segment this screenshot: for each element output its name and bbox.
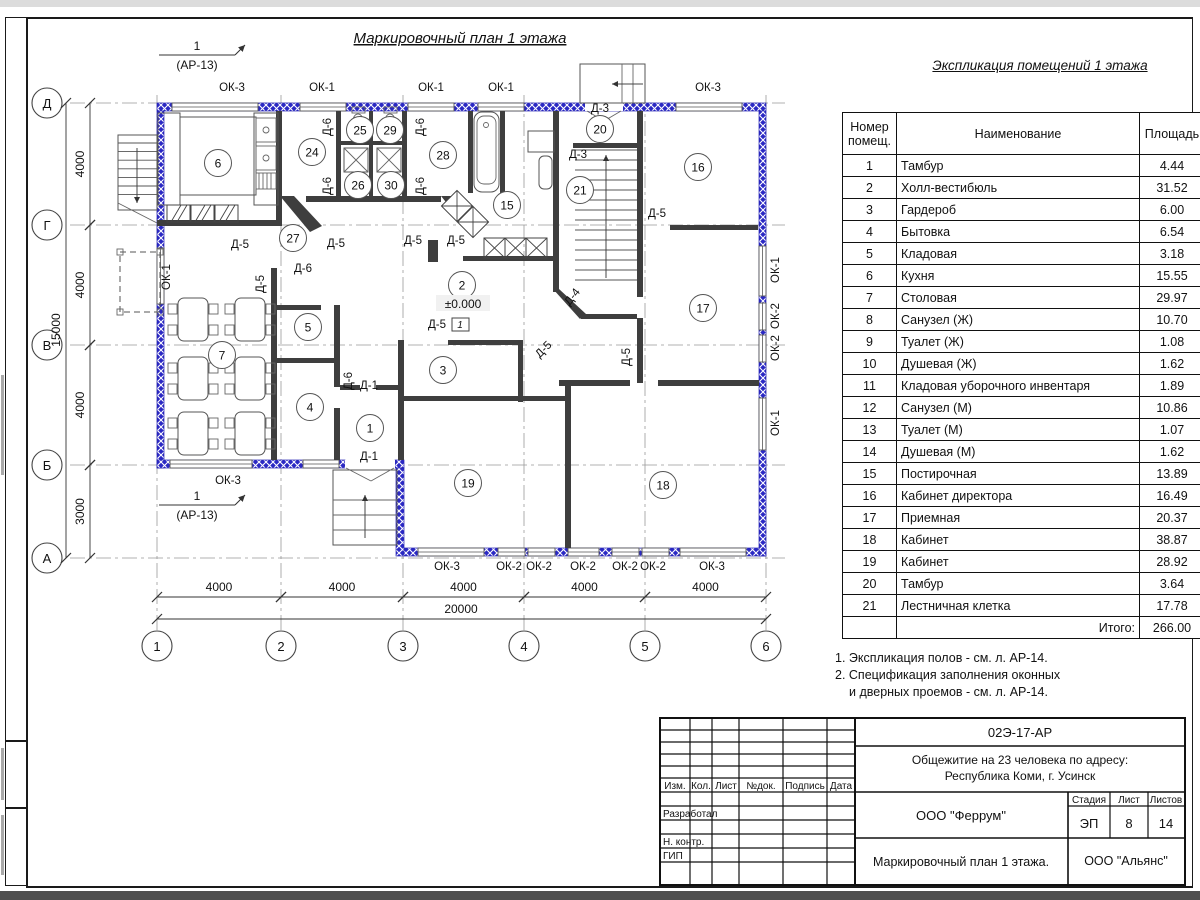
window-label: ОК-2 [612,561,638,573]
section-marker-ref: (АР-13) [176,58,217,72]
axis-label: 4 [520,639,527,654]
room-marker-number: 16 [691,161,705,175]
door-label: Д-5 [533,339,554,360]
entrance-porch [333,468,397,545]
level-mark: ±0.000 [445,297,482,311]
door-label: Д-4 [562,286,583,308]
title-block-label: Кол. [691,781,711,792]
margin-divider [5,807,26,809]
title-block-label: Изм. [664,781,685,792]
room-marker-number: 27 [286,232,300,246]
door-label: Д-3 [591,103,609,115]
door-label: Д-5 [404,235,422,247]
title-block-label: 8 [1125,816,1132,831]
window-label: ОК-3 [215,475,241,487]
notes: 1. Экспликация полов - см. л. АР-14.2. С… [835,650,1060,701]
window-label: ОК-2 [770,303,782,329]
room-marker-number: 6 [215,157,222,171]
stair-external [118,135,157,223]
chair [168,304,177,314]
canopy-dashed [117,249,163,315]
table-row: 20Тамбур3.64 [843,573,1200,595]
axis-label: Б [43,458,52,473]
chair [168,384,177,394]
table-row: 17Приемная20.37 [843,507,1200,529]
table-row: 16Кабинет директора16.49 [843,485,1200,507]
table-row: 1Тамбур4.44 [843,155,1200,177]
room-marker-number: 18 [656,479,670,493]
room-marker-number: 28 [436,149,450,163]
door-label: Д-1 [360,380,378,392]
door-label: Д-5 [428,319,446,331]
chair [225,384,234,394]
col-header-area: Площадь [1140,113,1200,155]
door-label: Д-3 [569,149,587,161]
serving-hatch [167,205,238,222]
axis-grid: 123456ДГВБА [32,88,785,661]
scan-artifact-bottom [0,891,1200,900]
table-row: 19Кабинет28.92 [843,551,1200,573]
door-label: Д-6 [415,118,427,136]
door-label: Д-6 [343,372,355,390]
window-label: ОК-2 [770,335,782,361]
section-marker-number: 1 [194,39,201,53]
dimension-label: 4000 [73,271,87,298]
section-marker-arrow [235,45,245,55]
chair [209,304,218,314]
door-label: Д-6 [322,177,334,195]
furniture [168,298,275,455]
dimension-label: 4000 [571,580,598,594]
note-line: 2. Спецификация заполнения оконных [835,667,1060,684]
window-label: ОК-3 [219,82,245,94]
axis-label: Г [43,218,50,233]
window-label: ОК-2 [496,561,522,573]
dimension-total: 15000 [49,313,63,347]
floor-plan: Маркировочный план 1 этажа 123456ДГВБА [0,0,840,700]
dimension-label: 4000 [73,150,87,177]
margin-divider [5,740,26,742]
room-marker-number: 7 [219,349,226,363]
total-label: Итого: [897,617,1140,639]
table-row: 2Холл-вестибюль31.52 [843,177,1200,199]
chair [209,418,218,428]
axis-label: 6 [762,639,769,654]
title-block-label: ООО "Феррум" [916,808,1006,823]
door-label: Д-5 [447,235,465,247]
title-block-label: Маркировочный план 1 этажа. [873,855,1049,869]
room-marker-number: 24 [305,146,319,160]
door-label: Д-1 [360,451,378,463]
room-marker-number: 3 [440,364,447,378]
chair [209,325,218,335]
window-label: ОК-2 [526,561,552,573]
dimension-total: 20000 [444,602,478,616]
table-row: 6Кухня15.55 [843,265,1200,287]
window-label: ОК-1 [418,82,444,94]
room-marker-number: 25 [353,124,367,138]
door-label: Д-5 [231,239,249,251]
section-marker-number: 1 [194,489,201,503]
dimension-label: 4000 [329,580,356,594]
chair [168,439,177,449]
room-marker-number: 20 [593,123,607,137]
total-value: 266.00 [1140,617,1200,639]
axis-label: Д [43,96,52,111]
title-block-label: Листов [1150,795,1183,806]
margin-blur-text [1,748,4,800]
title-block-label: ГИП [663,851,683,862]
window-label: ОК-2 [570,561,596,573]
door-label: Д-5 [648,208,666,220]
window-label: ОК-3 [695,82,721,94]
room-marker-number: 15 [500,199,514,213]
door-label: Д-5 [255,275,267,293]
axis-label: 3 [399,639,406,654]
plan-title: Маркировочный план 1 этажа [354,30,567,47]
table-row: 21Лестничная клетка17.78 [843,595,1200,617]
dimension-label: 4000 [450,580,477,594]
window-label: ОК-3 [434,561,460,573]
room-marker-number: 19 [461,477,475,491]
table-row: 7Столовая29.97 [843,287,1200,309]
dimension-label: 4000 [206,580,233,594]
window-label: ОК-1 [770,257,782,283]
title-block-label: Стадия [1072,795,1106,806]
dimension-label: 4000 [73,391,87,418]
table-total-row: Итого: 266.00 [843,617,1200,639]
col-header-name: Наименование [897,113,1140,155]
table-row: 15Постирочная13.89 [843,463,1200,485]
door-label: Д-6 [322,118,334,136]
chair [209,439,218,449]
axis-label: 2 [277,639,284,654]
window-label: ОК-3 [699,561,725,573]
room-marker-number: 1 [367,422,374,436]
dining-table [235,298,265,341]
title-block-label: Подпись [785,781,825,792]
title-block-label: 02Э-17-АР [988,725,1052,740]
table-row: 11Кладовая уборочного инвентаря1.89 [843,375,1200,397]
room-marker-number: 29 [383,124,397,138]
door-label: Д-6 [415,177,427,195]
chair [225,325,234,335]
note-line: 1. Экспликация полов - см. л. АР-14. [835,650,1060,667]
room-marker-number: 4 [307,401,314,415]
title-block-label: ЭП [1080,816,1099,831]
table-row: 18Кабинет38.87 [843,529,1200,551]
table-row: 8Санузел (Ж)10.70 [843,309,1200,331]
room-marker-number: 17 [696,302,710,316]
title-block-label: Н. контр. [663,837,704,848]
room-marker-number: 30 [384,179,398,193]
dining-table [178,357,208,400]
table-row: 4Бытовка6.54 [843,221,1200,243]
chair [168,325,177,335]
room-schedule-table: Номерпомещ. Наименование Площадь Капо 1Т… [842,112,1200,639]
window-label: ОК-2 [640,561,666,573]
table-row: 9Туалет (Ж)1.08 [843,331,1200,353]
title-block: Изм.Кол.Лист№док.ПодписьДатаРазработалН.… [655,713,1190,890]
title-block-label: Лист [1118,795,1140,806]
room-marker-number: 5 [305,321,312,335]
table-row: 3Гардероб6.00 [843,199,1200,221]
dimension-label: 4000 [692,580,719,594]
section-marker-ref: (АР-13) [176,508,217,522]
floor-type-number: 1 [457,320,463,331]
chair [168,418,177,428]
table-row: 14Душевая (М)1.62 [843,441,1200,463]
dimension-label: 3000 [73,498,87,525]
window-label: ОК-1 [309,82,335,94]
door-label: Д-5 [621,348,633,366]
drawing-sheet: { "plan": { "title": "Маркировочный план… [0,0,1200,900]
title-block-label: Республика Коми, г. Усинск [945,769,1096,783]
table-row: 12Санузел (М)10.86 [843,397,1200,419]
title-block-label: ООО "Альянс" [1084,854,1168,868]
col-header-number: Номерпомещ. [843,113,897,155]
title-block-label: №док. [746,781,775,792]
title-block-label: Общежитие на 23 человека по адресу: [912,753,1128,767]
dining-table [178,412,208,455]
window-label: ОК-1 [488,82,514,94]
window-label: ОК-1 [770,410,782,436]
title-block-label: Дата [830,781,853,792]
section-marker-arrow [235,495,245,505]
title-block-label: Разработал [663,808,718,820]
room-marker-number: 26 [351,179,365,193]
hall-bench [484,238,547,258]
door-label: Д-6 [294,263,312,275]
schedule-title: Экспликация помещений 1 этажа [890,58,1190,73]
chair [225,439,234,449]
window-label: ОК-1 [161,264,173,290]
dining-table [235,412,265,455]
chair [168,363,177,373]
note-line: и дверных проемов - см. л. АР-14. [835,684,1060,701]
stair-main [575,150,637,280]
table-row: 13Туалет (М)1.07 [843,419,1200,441]
axis-label: 5 [641,639,648,654]
stair-vestibule-protrusion [580,64,645,121]
table-row: 5Кладовая3.18 [843,243,1200,265]
title-block-label: Лист [715,781,737,792]
room-marker-number: 21 [573,184,587,198]
room-marker-number: 2 [459,279,466,293]
margin-blur-text [1,815,4,875]
chair [225,304,234,314]
chair [209,384,218,394]
dining-table [178,298,208,341]
dining-table [235,357,265,400]
axis-label: А [43,551,52,566]
chair [225,418,234,428]
table-row: 10Душевая (Ж)1.62 [843,353,1200,375]
title-block-label: 14 [1159,816,1173,831]
axis-label: 1 [153,639,160,654]
door-label: Д-5 [327,238,345,250]
